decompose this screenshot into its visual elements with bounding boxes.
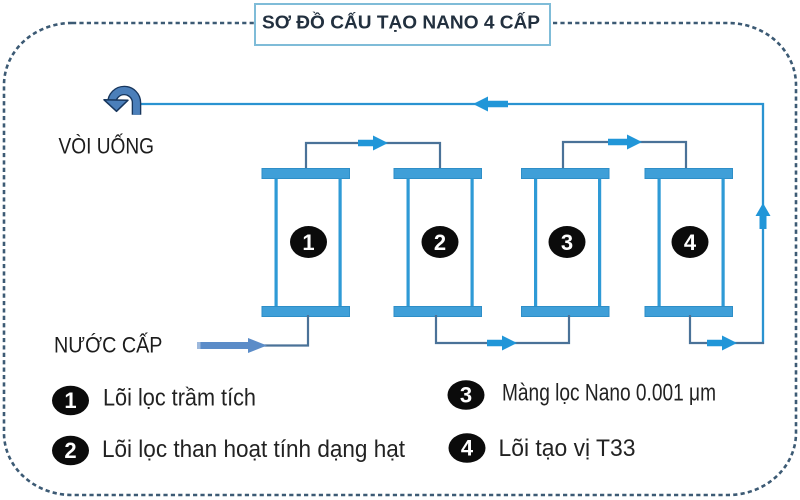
- svg-text:1: 1: [302, 230, 314, 255]
- svg-text:3: 3: [460, 383, 472, 408]
- svg-text:Lõi lọc than hoạt tính dạng hạ: Lõi lọc than hoạt tính dạng hạt: [102, 436, 405, 463]
- svg-text:Lõi tạo vị T33: Lõi tạo vị T33: [499, 435, 636, 462]
- svg-text:2: 2: [64, 438, 76, 463]
- svg-text:4: 4: [461, 436, 474, 461]
- svg-text:Lõi lọc trầm tích: Lõi lọc trầm tích: [103, 385, 256, 412]
- svg-text:2: 2: [434, 230, 446, 255]
- svg-text:1: 1: [64, 388, 76, 413]
- svg-text:SƠ ĐỒ CẤU TẠO NANO 4 CẤP: SƠ ĐỒ CẤU TẠO NANO 4 CẤP: [262, 12, 540, 33]
- svg-text:Màng lọc Nano 0.001 μm: Màng lọc Nano 0.001 μm: [502, 380, 716, 407]
- svg-text:NƯỚC CẤP: NƯỚC CẤP: [54, 333, 163, 358]
- svg-text:4: 4: [684, 230, 697, 255]
- svg-text:VÒI UỐNG: VÒI UỐNG: [59, 133, 155, 159]
- svg-text:3: 3: [561, 230, 573, 255]
